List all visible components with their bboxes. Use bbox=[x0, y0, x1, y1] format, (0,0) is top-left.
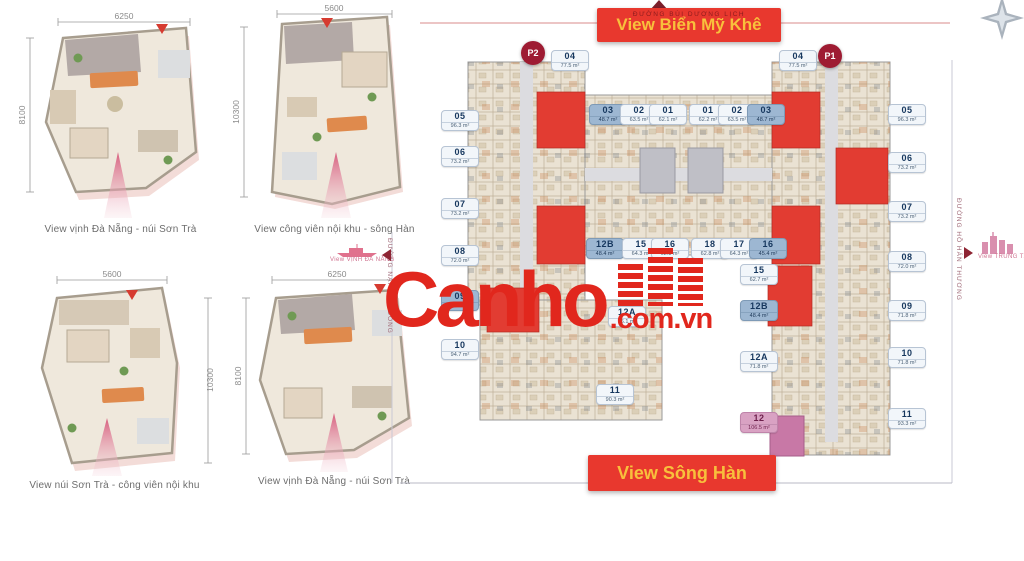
watermark-suffix: .com.vn bbox=[610, 306, 713, 332]
floorplan-brochure: { "banners": { "top": "View Biển Mỹ Khê"… bbox=[0, 0, 1024, 561]
elevator-core bbox=[640, 148, 675, 193]
tower-badge-p2: P2 bbox=[521, 41, 545, 65]
unit-12-pink bbox=[770, 416, 804, 456]
compass-icon bbox=[980, 0, 1024, 40]
edge-view-right: View TRUNG TÂM bbox=[978, 232, 1022, 260]
corridor bbox=[825, 62, 838, 442]
arrow-right-icon bbox=[964, 247, 973, 259]
street-label-right: ĐƯỜNG HỒ HÁN THƯƠNG bbox=[955, 198, 962, 313]
tower-badge-p1: P1 bbox=[818, 44, 842, 68]
watermark: Canho .com.vn bbox=[383, 248, 712, 332]
ship-icon bbox=[335, 244, 379, 257]
edge-view-right-label: View TRUNG TÂM bbox=[978, 254, 1022, 260]
center-block bbox=[585, 95, 772, 255]
edge-view-left: View VỊNH ĐÀ NẴNG bbox=[330, 244, 384, 263]
city-skyline-icon bbox=[980, 232, 1020, 254]
watermark-brand: Canho bbox=[383, 268, 606, 332]
elevator-core bbox=[688, 148, 723, 193]
watermark-buildings-icon bbox=[618, 248, 703, 306]
watermark-right: .com.vn bbox=[610, 248, 713, 332]
street-label-top: ĐƯỜNG BÙI DƯƠNG LỊCH bbox=[600, 11, 778, 18]
edge-view-left-label: View VỊNH ĐÀ NẴNG bbox=[330, 257, 384, 263]
corridor bbox=[585, 168, 772, 181]
view-song-han-banner: View Sông Hàn bbox=[588, 455, 776, 491]
